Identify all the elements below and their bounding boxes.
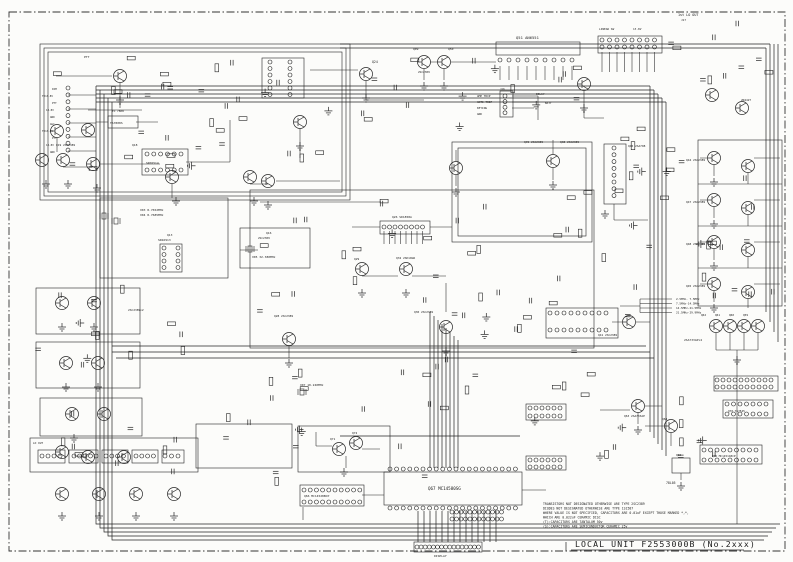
part-label: DISPLAY	[434, 554, 447, 558]
connector-pin	[345, 488, 349, 492]
part-label: 2SA733AP×4	[684, 338, 702, 342]
connector-pin	[555, 328, 559, 332]
connector-pin	[638, 45, 642, 49]
connector-pin	[615, 45, 619, 49]
connector-pin	[464, 545, 468, 549]
capacitor-symbol	[70, 163, 76, 165]
resistor-symbol	[562, 382, 566, 390]
transistor-symbol	[244, 171, 257, 184]
connector-pin	[162, 253, 166, 257]
connector-pin	[757, 385, 761, 389]
transistor-symbol	[262, 175, 275, 188]
ground-symbol	[42, 180, 50, 188]
connector-pin	[66, 114, 70, 118]
capacitor-symbol	[744, 240, 750, 242]
ground-symbol	[638, 168, 646, 176]
connector-pin	[395, 467, 399, 471]
resistor-symbol	[181, 347, 185, 355]
connector-pin	[477, 517, 481, 521]
resistor-symbol	[168, 322, 176, 326]
connector-pin	[179, 168, 183, 172]
capacitor-symbol	[732, 289, 738, 291]
capacitor-symbol	[231, 60, 233, 66]
connector-pin	[459, 517, 463, 521]
resistor-symbol	[275, 477, 279, 485]
capacitor-symbol	[219, 143, 225, 145]
connector-pin	[440, 545, 444, 549]
capacitor-symbol	[697, 440, 703, 442]
connector-pin	[428, 506, 432, 510]
transistor-symbol	[724, 320, 737, 333]
capacitor-symbol	[563, 71, 565, 77]
connector-pin	[454, 467, 458, 471]
connector-pin	[419, 545, 423, 549]
ground-symbol	[452, 188, 460, 196]
part-label: X07 10.240MHz	[300, 383, 324, 387]
connector-pin	[558, 406, 562, 410]
connector-pin	[176, 253, 180, 257]
connector-pin	[358, 488, 362, 492]
connector-pin	[763, 385, 767, 389]
connector-pin	[333, 488, 337, 492]
connector-pin	[576, 328, 580, 332]
part-label: Q59	[743, 313, 748, 317]
ground-symbol	[618, 424, 626, 432]
connector-pin	[89, 454, 93, 458]
connector-pin	[600, 38, 604, 42]
resistor-symbol	[667, 148, 675, 152]
resistor-symbol	[567, 196, 575, 200]
connector-pin	[561, 58, 565, 62]
part-label: X03 8.7652MHz	[140, 208, 164, 212]
connector-pin	[555, 311, 559, 315]
labels-layer: 1st LO OUTJ17LINEAR SW13.8VQ51 AN6551Q09…	[33, 13, 751, 558]
connector-pin	[434, 506, 438, 510]
connector-pin	[444, 545, 448, 549]
ground-symbol	[459, 92, 467, 100]
connector-pin	[408, 467, 412, 471]
transistor-symbol	[742, 202, 755, 215]
part-label: J17	[681, 18, 686, 22]
connector-pin	[745, 402, 749, 406]
capacitor-symbol	[292, 291, 294, 297]
resistor-symbol	[465, 386, 469, 394]
part-label: TX13.8V	[42, 129, 53, 133]
resistor-symbol	[342, 251, 346, 259]
capacitor-symbol	[81, 362, 83, 368]
capacitor-symbol	[613, 444, 615, 450]
crystal-symbol	[112, 218, 120, 224]
part-label: KEYING	[477, 106, 487, 110]
transistor-symbol	[82, 124, 95, 137]
connector-pin	[513, 467, 517, 471]
crystal-symbol	[298, 389, 306, 395]
connector-pin	[327, 488, 331, 492]
transistor-symbol	[438, 56, 451, 69]
connector-pin	[612, 180, 616, 184]
connector-pin	[725, 402, 729, 406]
connector-pin	[314, 500, 318, 504]
connector-pin	[452, 545, 456, 549]
connector-pin	[434, 467, 438, 471]
part-label: Q60	[729, 313, 734, 317]
transistor-symbol	[450, 162, 463, 175]
transistor-symbol	[166, 171, 179, 184]
connector-pin	[66, 121, 70, 125]
connector-pin	[528, 406, 532, 410]
connector-pin	[268, 93, 272, 97]
ground-symbol	[58, 323, 66, 331]
part-label: Q67 MC14580SG	[428, 486, 461, 491]
part-label: 14.5MHz-21.5MHz	[676, 306, 702, 310]
connector-pin	[562, 328, 566, 332]
part-label: Q45 2SC2389	[686, 284, 705, 288]
ground-symbol	[549, 181, 557, 189]
resistor-symbol	[121, 285, 125, 293]
capacitor-symbol	[559, 77, 561, 83]
ground-symbol	[64, 180, 72, 188]
connector-pin	[268, 80, 272, 84]
connector-pin	[733, 378, 737, 382]
connector-pin	[461, 467, 465, 471]
connector-pin	[764, 412, 768, 416]
connector-pin	[552, 406, 556, 410]
connector-pin	[162, 246, 166, 250]
connector-pin	[464, 517, 468, 521]
connector-pin	[66, 86, 70, 90]
resistor-symbol	[587, 372, 595, 376]
connector-pin	[608, 45, 612, 49]
capacitor-symbol	[223, 437, 229, 439]
connector-pin	[308, 500, 312, 504]
ground-symbol	[296, 426, 304, 434]
connector-pin	[612, 173, 616, 177]
capacitor-symbol	[744, 175, 746, 181]
part-label: GND	[50, 150, 55, 154]
connector-pin	[623, 38, 627, 42]
connector-pin	[40, 454, 44, 458]
ground-symbol	[285, 359, 293, 367]
ground-symbol	[58, 512, 66, 520]
ground-symbol	[83, 354, 91, 362]
transistor-symbol	[708, 236, 721, 249]
ground-symbol	[531, 417, 539, 425]
ground-symbol	[76, 319, 84, 327]
resistor-symbol	[216, 129, 224, 133]
ground-symbol	[596, 452, 604, 460]
part-label: 2SC2389×2	[128, 308, 144, 312]
connector-pin	[176, 266, 180, 270]
part-label: LINEAR SW	[599, 27, 614, 31]
part-label: ANTI TRIP	[477, 100, 492, 104]
ground-symbol	[634, 426, 642, 434]
capacitor-symbol	[166, 135, 168, 141]
capacitor-symbol	[424, 297, 426, 303]
part-label: 13.8V	[46, 108, 54, 112]
connector-pin	[486, 517, 490, 521]
connector-pin	[552, 58, 556, 62]
part-label: AGC	[50, 122, 55, 126]
ground-symbol	[358, 289, 366, 297]
part-label: Q50	[448, 47, 454, 51]
connector-pin	[468, 517, 472, 521]
connector-pin	[702, 458, 706, 462]
connector-pin	[548, 311, 552, 315]
connector-pin	[159, 152, 163, 156]
transistor-symbol	[56, 488, 69, 501]
resistor-symbol	[160, 72, 168, 76]
connector-pin	[721, 385, 725, 389]
transistor-symbol	[547, 155, 560, 168]
resistor-symbol	[227, 414, 231, 422]
capacitor-symbol	[292, 376, 298, 378]
sheet-title: LOCAL UNIT F2553000B (No.2xxx)	[575, 539, 756, 549]
note-line: TRANSISTORS NOT DESIGNATED OTHERWISE ARE…	[543, 502, 645, 506]
resistor-symbol	[708, 241, 716, 245]
resistor-symbol	[679, 420, 683, 428]
part-label: Q28 2SC2389	[274, 314, 293, 318]
connector-pin	[352, 488, 356, 492]
connector-pin	[339, 488, 343, 492]
resistor-symbol	[573, 66, 581, 70]
transistor-symbol	[623, 316, 636, 329]
connector-pin	[721, 378, 725, 382]
transistor-symbol	[356, 263, 369, 276]
part-label: X05 32.380MHz	[252, 255, 276, 259]
transistor-symbol	[333, 443, 346, 456]
connector-pin	[715, 378, 719, 382]
capacitor-symbol	[72, 444, 74, 450]
capacitor-symbol	[736, 21, 738, 27]
connector-pin	[751, 378, 755, 382]
connector-pin	[345, 500, 349, 504]
capacitor-symbol	[497, 290, 499, 296]
notes-block: TRANSISTORS NOT DESIGNATED OTHERWISE ARE…	[543, 502, 689, 529]
connector-pin	[268, 67, 272, 71]
resistor-symbol	[615, 189, 623, 193]
resistor-symbol	[380, 199, 388, 203]
connector-pin	[715, 458, 719, 462]
capacitor-symbol	[406, 102, 408, 108]
part-label: Q66 MC14528BCP	[304, 494, 329, 498]
resistor-symbol	[53, 72, 61, 76]
capacitor-symbol	[361, 111, 363, 117]
connector-pin	[333, 500, 337, 504]
connector-pins	[40, 38, 773, 549]
connector-pin	[358, 500, 362, 504]
transistor-symbol	[752, 320, 765, 333]
connector-pin	[66, 107, 70, 111]
connector-pin	[546, 465, 550, 469]
connector-pin	[162, 259, 166, 263]
connector-pin	[408, 506, 412, 510]
connector-pin	[546, 406, 550, 410]
part-label: Q70 TA7545	[728, 409, 745, 413]
part-label: TO 7808	[112, 109, 124, 113]
connector-pin	[487, 467, 491, 471]
capacitor-symbol	[484, 204, 486, 210]
connector-pin	[612, 194, 616, 198]
connector-pin	[604, 328, 608, 332]
transistor-symbol	[57, 154, 70, 167]
resistor-symbol	[702, 273, 706, 281]
connector-pin	[745, 412, 749, 416]
transistor-symbol	[742, 286, 755, 299]
connector-pin	[500, 510, 504, 514]
connector-pin	[388, 506, 392, 510]
connector-pin	[302, 500, 306, 504]
connector-pin	[494, 506, 498, 510]
resistor-symbol	[239, 117, 247, 121]
connector-pin	[583, 328, 587, 332]
connector-pin	[709, 448, 713, 452]
capacitor-symbol	[277, 80, 279, 86]
part-label: Q71	[330, 437, 335, 441]
resistor-symbol	[353, 277, 357, 285]
connector-pin	[507, 506, 511, 510]
resistor-symbol	[468, 252, 476, 256]
connector-pin	[722, 458, 726, 462]
connector-pin	[516, 58, 520, 62]
part-label: Q41 2SC2389	[598, 333, 617, 337]
connector-pin	[140, 454, 144, 458]
transistor-symbol	[708, 194, 721, 207]
resistor-symbol	[602, 254, 606, 262]
connector-pin	[145, 152, 149, 156]
connector-pin	[702, 448, 706, 452]
connector-pin	[104, 454, 108, 458]
part-label: 7.5MHz-14.5MHz	[676, 302, 700, 306]
connector-pin	[739, 385, 743, 389]
capacitor-symbol	[401, 370, 403, 376]
connector-pin	[486, 510, 490, 514]
connector-pin	[327, 500, 331, 504]
connector-pin	[608, 38, 612, 42]
part-label: TX13.8V	[42, 94, 53, 98]
resistor-symbol	[605, 450, 609, 458]
component-outlines	[30, 36, 782, 552]
connector-pin	[534, 458, 538, 462]
connector-pin	[715, 448, 719, 452]
connector-pin	[540, 406, 544, 410]
ground-symbol	[90, 323, 98, 331]
part-label: PTT	[84, 55, 90, 59]
transistor-symbol	[710, 320, 723, 333]
connector-pin	[583, 311, 587, 315]
connector-pin	[176, 454, 180, 458]
capacitor-symbol	[128, 92, 130, 98]
part-label: LO OUT	[33, 441, 43, 445]
resistor-symbol	[518, 324, 522, 332]
connector-pin	[472, 545, 476, 549]
connector-pin	[525, 58, 529, 62]
connector-pin	[727, 385, 731, 389]
capacitor-symbol	[362, 406, 364, 412]
connector-pin	[448, 545, 452, 549]
capacitor-symbol	[294, 218, 296, 224]
capacitor-symbol	[172, 469, 174, 475]
resistor-symbol	[477, 245, 481, 253]
note-line: WHERE VALUE IS NOT SPECIFIED, CAPACITORS…	[543, 511, 689, 515]
connector-pin	[455, 510, 459, 514]
connector-pin	[145, 168, 149, 172]
connector-pin	[764, 402, 768, 406]
capacitor-symbol	[679, 160, 685, 162]
part-label: 2SC2389	[418, 70, 430, 74]
connector-pin	[540, 414, 544, 418]
connector-pin	[441, 467, 445, 471]
capacitor-symbol	[566, 227, 568, 233]
capacitor-symbol	[713, 35, 715, 41]
connector-pin	[763, 378, 767, 382]
connector-pin	[414, 506, 418, 510]
connector-pin	[134, 454, 138, 458]
connector-pin	[653, 38, 657, 42]
connector-pin	[741, 448, 745, 452]
connector-pin	[447, 467, 451, 471]
part-label: Q29	[354, 257, 359, 261]
resistor-symbol	[680, 397, 684, 405]
connector-pin	[176, 259, 180, 263]
capacitor-symbol	[646, 245, 652, 247]
connector-pin	[436, 545, 440, 549]
connector-pin	[558, 458, 562, 462]
connector-pin	[495, 517, 499, 521]
connector-pin	[441, 506, 445, 510]
resistor-symbol	[552, 385, 560, 389]
connector-pin	[653, 45, 657, 49]
connector-pin	[428, 467, 432, 471]
part-label: Q39 2SC2389	[524, 140, 543, 144]
connector-pin	[395, 506, 399, 510]
transistor-symbol	[92, 357, 105, 370]
part-label: Q47 2SC2389	[686, 200, 705, 204]
connector-pin	[314, 488, 318, 492]
connector-pin	[604, 311, 608, 315]
capacitor-symbol	[462, 313, 464, 319]
connector-pin	[534, 58, 538, 62]
transistor-symbol	[738, 320, 751, 333]
resistor-symbol	[166, 164, 174, 168]
ground-symbol	[132, 512, 140, 520]
part-label: Q09	[413, 47, 419, 51]
connector-pin	[748, 448, 752, 452]
connector-pin	[754, 448, 758, 452]
part-label: Q68	[676, 453, 681, 457]
connector-pin	[268, 86, 272, 90]
connector-pin	[410, 225, 414, 229]
part-label: Q13	[167, 233, 173, 237]
resistor-symbol	[629, 172, 633, 180]
transistor-symbol	[114, 70, 127, 83]
capacitor-symbol	[138, 131, 144, 133]
capacitor-symbol	[422, 475, 428, 477]
transistor-symbol	[708, 278, 721, 291]
connector-pin	[727, 378, 731, 382]
connector-pin	[597, 328, 601, 332]
connector-pin	[427, 545, 431, 549]
resistor-symbol	[549, 301, 557, 305]
connector-pin	[456, 545, 460, 549]
connector-pin	[467, 506, 471, 510]
connector-pin	[500, 517, 504, 521]
resistor-symbol	[260, 244, 268, 248]
connector-pin	[552, 414, 556, 418]
ground-symbol	[710, 220, 718, 228]
connector-pin	[558, 414, 562, 418]
transistor-symbol	[736, 102, 749, 115]
capacitor-symbol	[452, 313, 458, 315]
